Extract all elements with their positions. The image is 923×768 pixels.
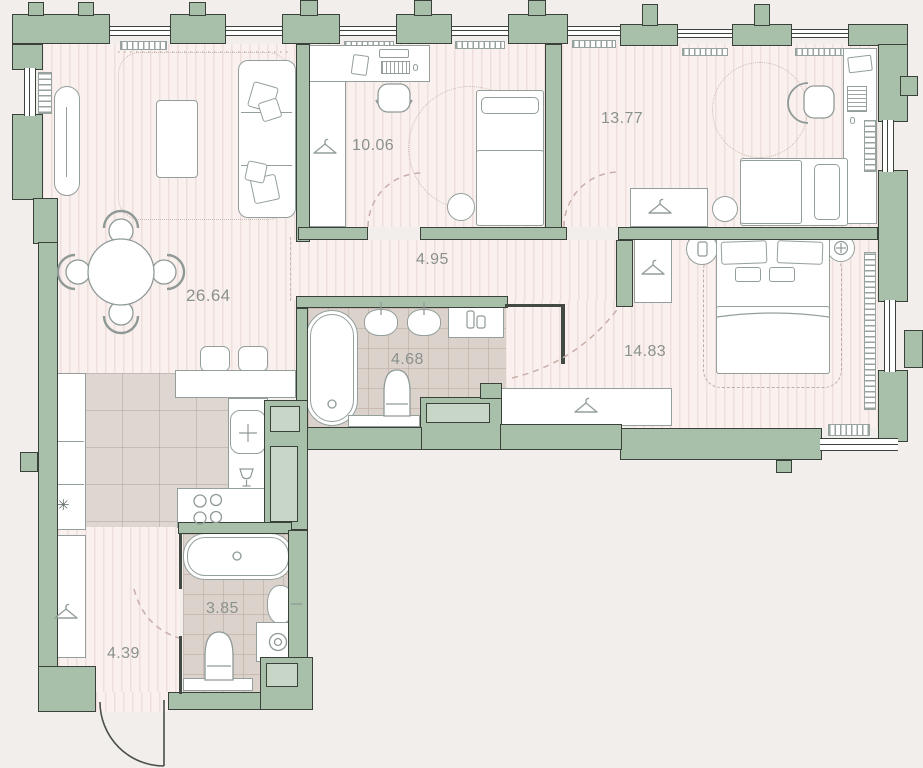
window	[882, 120, 894, 172]
wall	[618, 227, 878, 240]
pillow-master-small	[735, 267, 761, 282]
floor-plan: ✳	[0, 0, 923, 768]
pillow-master	[721, 240, 768, 265]
radiator-bedroom2	[572, 40, 616, 48]
wall	[178, 522, 292, 534]
wall	[732, 24, 792, 46]
wall	[620, 24, 678, 46]
laundry-cabinet	[448, 304, 504, 338]
wall	[38, 242, 58, 668]
wall-pillar	[642, 4, 658, 26]
window	[452, 26, 508, 36]
radiator-right-top	[864, 120, 876, 172]
area-label-master: 14.83	[624, 343, 666, 361]
kitchen-sink	[230, 410, 266, 454]
fridge-snowflake-icon: ✳	[57, 496, 70, 514]
wardrobe-bedroom2	[630, 188, 708, 227]
wall-pillar	[900, 76, 918, 96]
window	[792, 29, 848, 38]
laptop	[847, 55, 873, 74]
radiator-left-window	[38, 72, 52, 114]
area-label-wc: 3.85	[206, 600, 239, 618]
blanket-bedroom2	[740, 160, 802, 224]
window	[24, 68, 36, 116]
radiator-living	[120, 41, 167, 50]
pillow-master-small	[769, 267, 795, 282]
wall	[296, 44, 310, 242]
wall-pillar	[776, 460, 792, 473]
shaft	[266, 663, 298, 687]
floor-entry-doorway	[96, 692, 168, 712]
wall	[282, 14, 340, 44]
paper-on-desk	[351, 54, 370, 76]
window	[678, 29, 732, 38]
blanket-bedroom1	[476, 150, 544, 226]
wall	[170, 14, 226, 44]
area-label-living: 26.64	[186, 286, 231, 306]
wall	[616, 240, 633, 307]
window	[110, 26, 170, 36]
wall	[296, 427, 422, 450]
area-label-entry: 4.39	[107, 645, 140, 663]
area-label-bedroom1: 10.06	[352, 137, 394, 155]
radiator-bedroom2	[795, 48, 845, 56]
bathtub-main	[306, 310, 358, 426]
wall	[848, 24, 908, 46]
radiator-master-bottom	[828, 424, 870, 436]
sink-main-right	[407, 309, 441, 336]
wall-pillar	[28, 2, 44, 16]
wall-pillar	[904, 330, 923, 368]
partition	[179, 533, 182, 589]
shaft	[426, 403, 490, 423]
wall	[500, 424, 622, 450]
window	[884, 300, 896, 372]
coffee-table	[156, 100, 198, 178]
wall-pillar	[300, 0, 318, 16]
partition	[505, 304, 565, 307]
wall-pillar	[78, 2, 94, 16]
shaft	[270, 406, 300, 432]
sink-main-left	[364, 309, 398, 336]
mouse	[413, 64, 418, 71]
wall	[12, 114, 43, 200]
wall-pillar	[528, 0, 546, 16]
tv-console	[54, 86, 80, 196]
radiator-master-right	[864, 252, 876, 410]
side-table-bedroom1	[447, 193, 475, 221]
shaft	[270, 446, 298, 522]
window	[226, 26, 282, 36]
bar-stool	[200, 346, 230, 372]
wall	[545, 44, 562, 240]
radiator-bedroom2	[682, 48, 728, 56]
partition	[561, 304, 565, 364]
wall	[168, 692, 262, 710]
wall	[12, 44, 43, 70]
wall	[396, 14, 452, 44]
wall	[620, 428, 822, 460]
monitor	[379, 49, 409, 58]
wall-pillar	[20, 452, 38, 472]
wall-pillar	[414, 0, 432, 16]
rug-bedroom-2	[712, 62, 808, 158]
wall-pillar	[754, 4, 770, 26]
blanket-master	[716, 306, 830, 374]
wall-pillar	[189, 2, 206, 16]
kitchen-counter-top	[175, 370, 296, 398]
wall	[480, 383, 502, 399]
wall	[296, 296, 508, 308]
pillow-bedroom2	[814, 164, 840, 220]
sofa-pillow	[244, 160, 268, 184]
side-table-bedroom2	[712, 196, 738, 222]
keyboard	[847, 86, 867, 112]
bathtub-inner	[310, 314, 354, 422]
wall	[508, 14, 568, 44]
wall	[420, 227, 567, 240]
area-label-hallway: 4.95	[416, 251, 449, 269]
wall	[33, 198, 58, 244]
wall	[878, 170, 908, 302]
wardrobe-master-top	[634, 235, 672, 303]
bar-stool	[238, 346, 268, 372]
window	[820, 438, 898, 451]
desk-bedroom1	[308, 45, 430, 82]
pillow-master	[777, 240, 824, 265]
tv-screen-line	[66, 107, 67, 177]
bathtub-inner	[187, 537, 289, 576]
radiator-bedroom1	[455, 41, 505, 49]
wardrobe-master-bottom	[500, 388, 672, 426]
bath-mat	[183, 678, 253, 691]
zone-divider-dashed	[290, 237, 291, 301]
partition	[179, 636, 182, 694]
area-label-bedroom2: 13.77	[601, 110, 643, 128]
wall	[12, 14, 110, 44]
bath-shelf	[348, 415, 420, 427]
floor-hallway	[290, 240, 634, 300]
mouse	[850, 117, 855, 124]
pillow-bedroom1	[481, 97, 539, 114]
wall	[878, 370, 908, 442]
area-label-bathroom: 4.68	[391, 351, 424, 369]
window	[340, 26, 396, 36]
window	[568, 26, 620, 36]
wall	[298, 227, 368, 240]
floor-corridor	[505, 300, 634, 392]
keyboard	[381, 61, 410, 74]
bathtub-small	[183, 533, 293, 580]
wall	[38, 666, 96, 712]
